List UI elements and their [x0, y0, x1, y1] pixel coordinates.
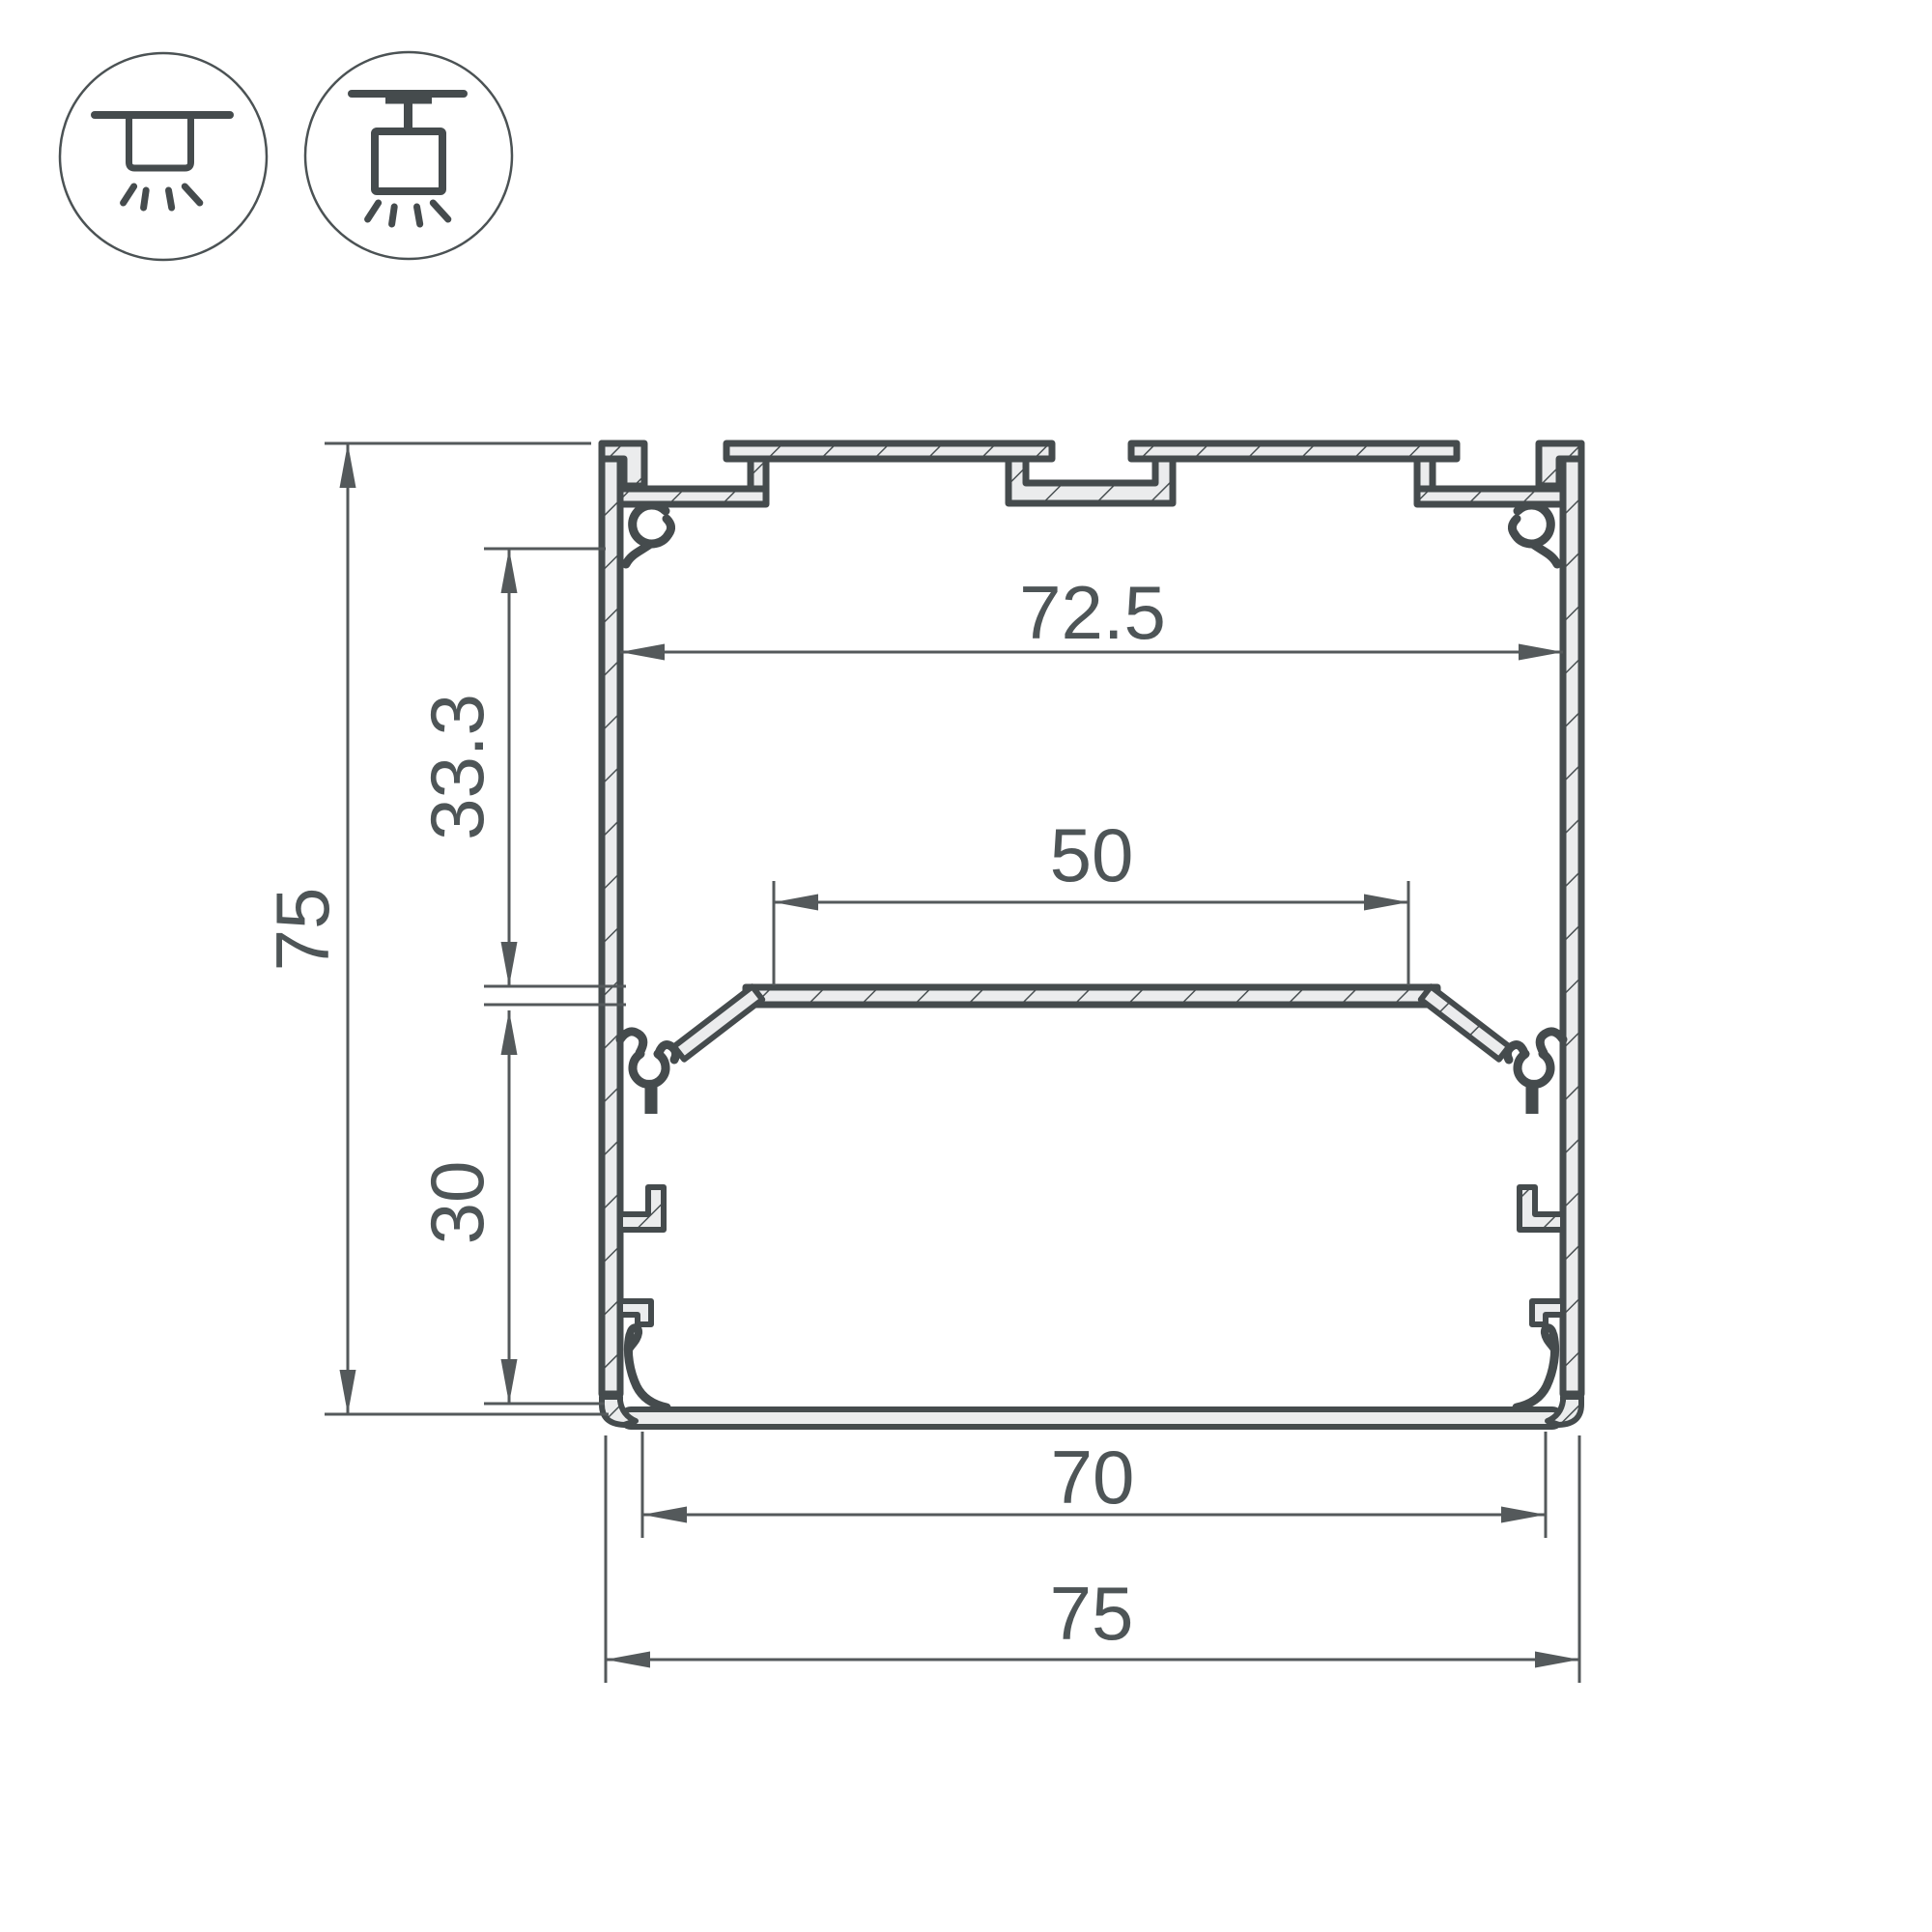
svg-text:50: 50 — [1050, 812, 1134, 897]
svg-text:72.5: 72.5 — [1019, 570, 1166, 655]
svg-text:30: 30 — [414, 1161, 499, 1245]
svg-text:33.3: 33.3 — [414, 694, 499, 840]
svg-text:75: 75 — [260, 888, 345, 972]
svg-text:75: 75 — [1050, 1571, 1134, 1656]
svg-text:70: 70 — [1051, 1435, 1135, 1520]
